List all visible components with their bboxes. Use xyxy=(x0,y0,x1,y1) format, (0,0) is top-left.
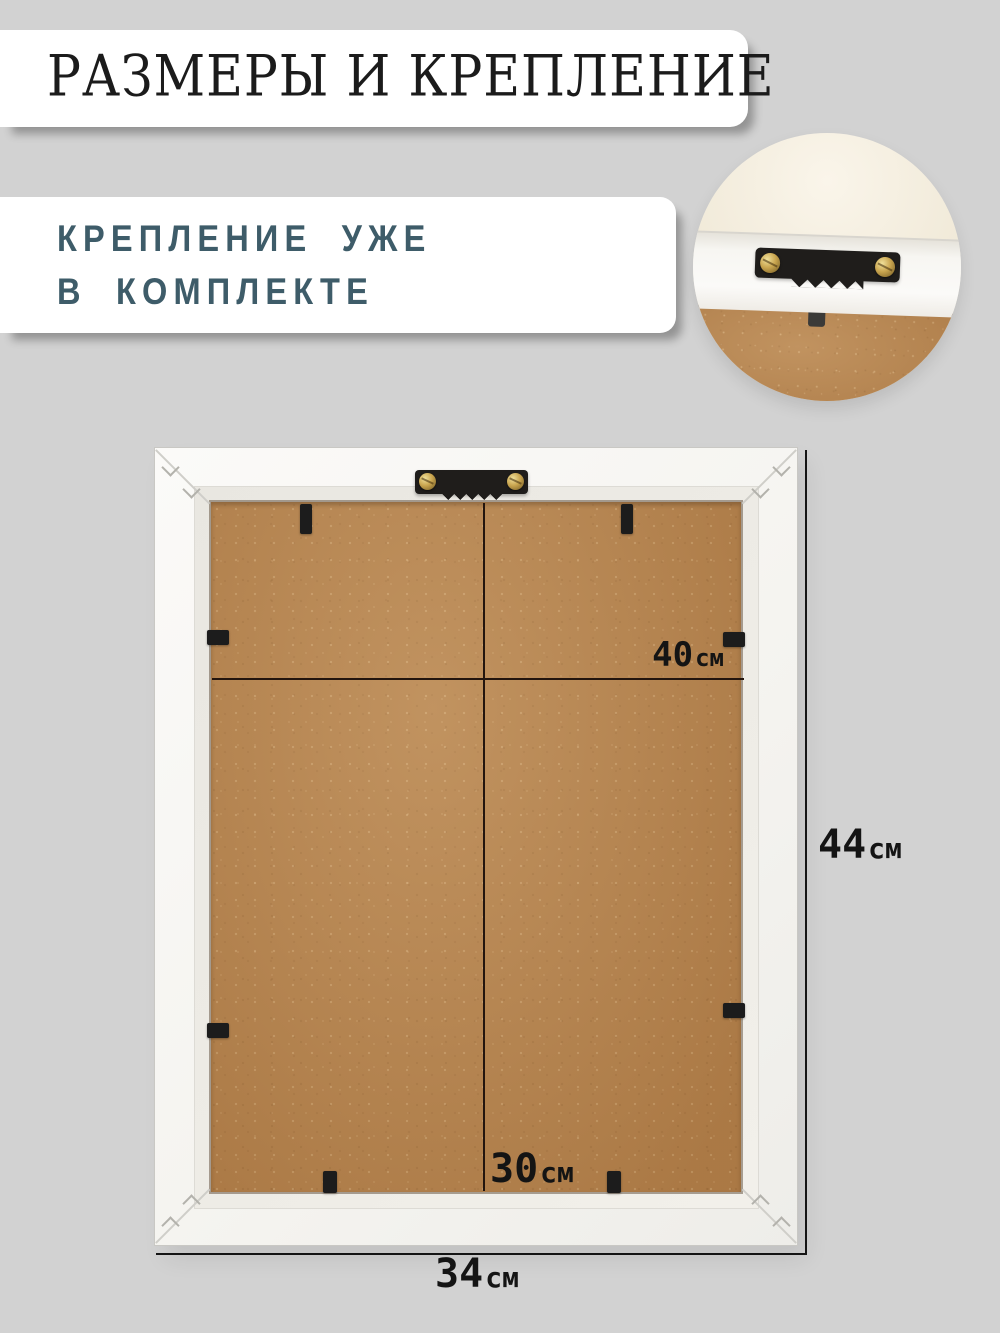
flexi-tab xyxy=(723,632,745,647)
dimension-unit: см xyxy=(485,1261,519,1294)
screw-icon xyxy=(507,473,524,490)
sawtooth-teeth-icon xyxy=(791,275,863,290)
title-banner: РАЗМЕРЫ И КРЕПЛЕНИЕ xyxy=(0,30,748,127)
dimension-label-40cm: 40см xyxy=(560,635,724,675)
included-callout: КРЕПЛЕНИЕ УЖЕ В КОМПЛЕКТЕ xyxy=(0,197,676,333)
callout-text: КРЕПЛЕНИЕ УЖЕ В КОМПЛЕКТЕ xyxy=(57,212,432,318)
screw-icon xyxy=(875,257,896,278)
product-infographic: РАЗМЕРЫ И КРЕПЛЕНИЕ КРЕПЛЕНИЕ УЖЕ В КОМП… xyxy=(0,0,1000,1333)
flexi-tab xyxy=(207,630,229,645)
v-nail-mark xyxy=(161,458,179,476)
dimension-value: 34 xyxy=(435,1251,483,1297)
dimension-label-44cm: 44см xyxy=(818,822,902,868)
dimension-line-40cm xyxy=(212,678,744,680)
dimension-unit: см xyxy=(695,644,724,672)
dimension-value: 44 xyxy=(818,822,866,868)
flexi-tab xyxy=(207,1023,229,1038)
flexi-tab xyxy=(621,504,633,534)
screw-icon xyxy=(760,253,781,274)
dimension-unit: см xyxy=(868,832,902,865)
flexi-tab xyxy=(300,504,312,534)
center-vertical-line xyxy=(483,503,485,1191)
mdf-back-panel xyxy=(211,502,741,1192)
dimension-label-34cm: 34см xyxy=(392,1251,562,1297)
flexi-tab xyxy=(607,1171,621,1193)
dimension-line-44cm xyxy=(805,450,807,1254)
v-nail-mark xyxy=(772,458,790,476)
flexi-tab xyxy=(323,1171,337,1193)
dimension-label-30cm: 30см xyxy=(490,1146,574,1192)
callout-line-1: КРЕПЛЕНИЕ УЖЕ xyxy=(57,212,432,265)
callout-line-2: В КОМПЛЕКТЕ xyxy=(57,265,432,318)
v-nail-mark xyxy=(161,1216,179,1234)
dimension-unit: см xyxy=(540,1156,574,1189)
flexi-tab xyxy=(723,1003,745,1018)
closeup-mdf-back xyxy=(693,303,961,401)
hanger-closeup-photo xyxy=(693,133,961,401)
dimension-value: 30 xyxy=(490,1146,538,1192)
dimension-value: 40 xyxy=(652,635,693,675)
page-title: РАЗМЕРЫ И КРЕПЛЕНИЕ xyxy=(47,25,775,132)
sawtooth-teeth-icon xyxy=(442,491,502,500)
closeup-rotated-group xyxy=(693,133,961,401)
screw-icon xyxy=(419,473,436,490)
sawtooth-hanger-icon xyxy=(755,247,901,282)
v-nail-mark xyxy=(772,1216,790,1234)
frame-back-photo xyxy=(155,448,797,1245)
sawtooth-hanger-icon xyxy=(415,470,528,494)
